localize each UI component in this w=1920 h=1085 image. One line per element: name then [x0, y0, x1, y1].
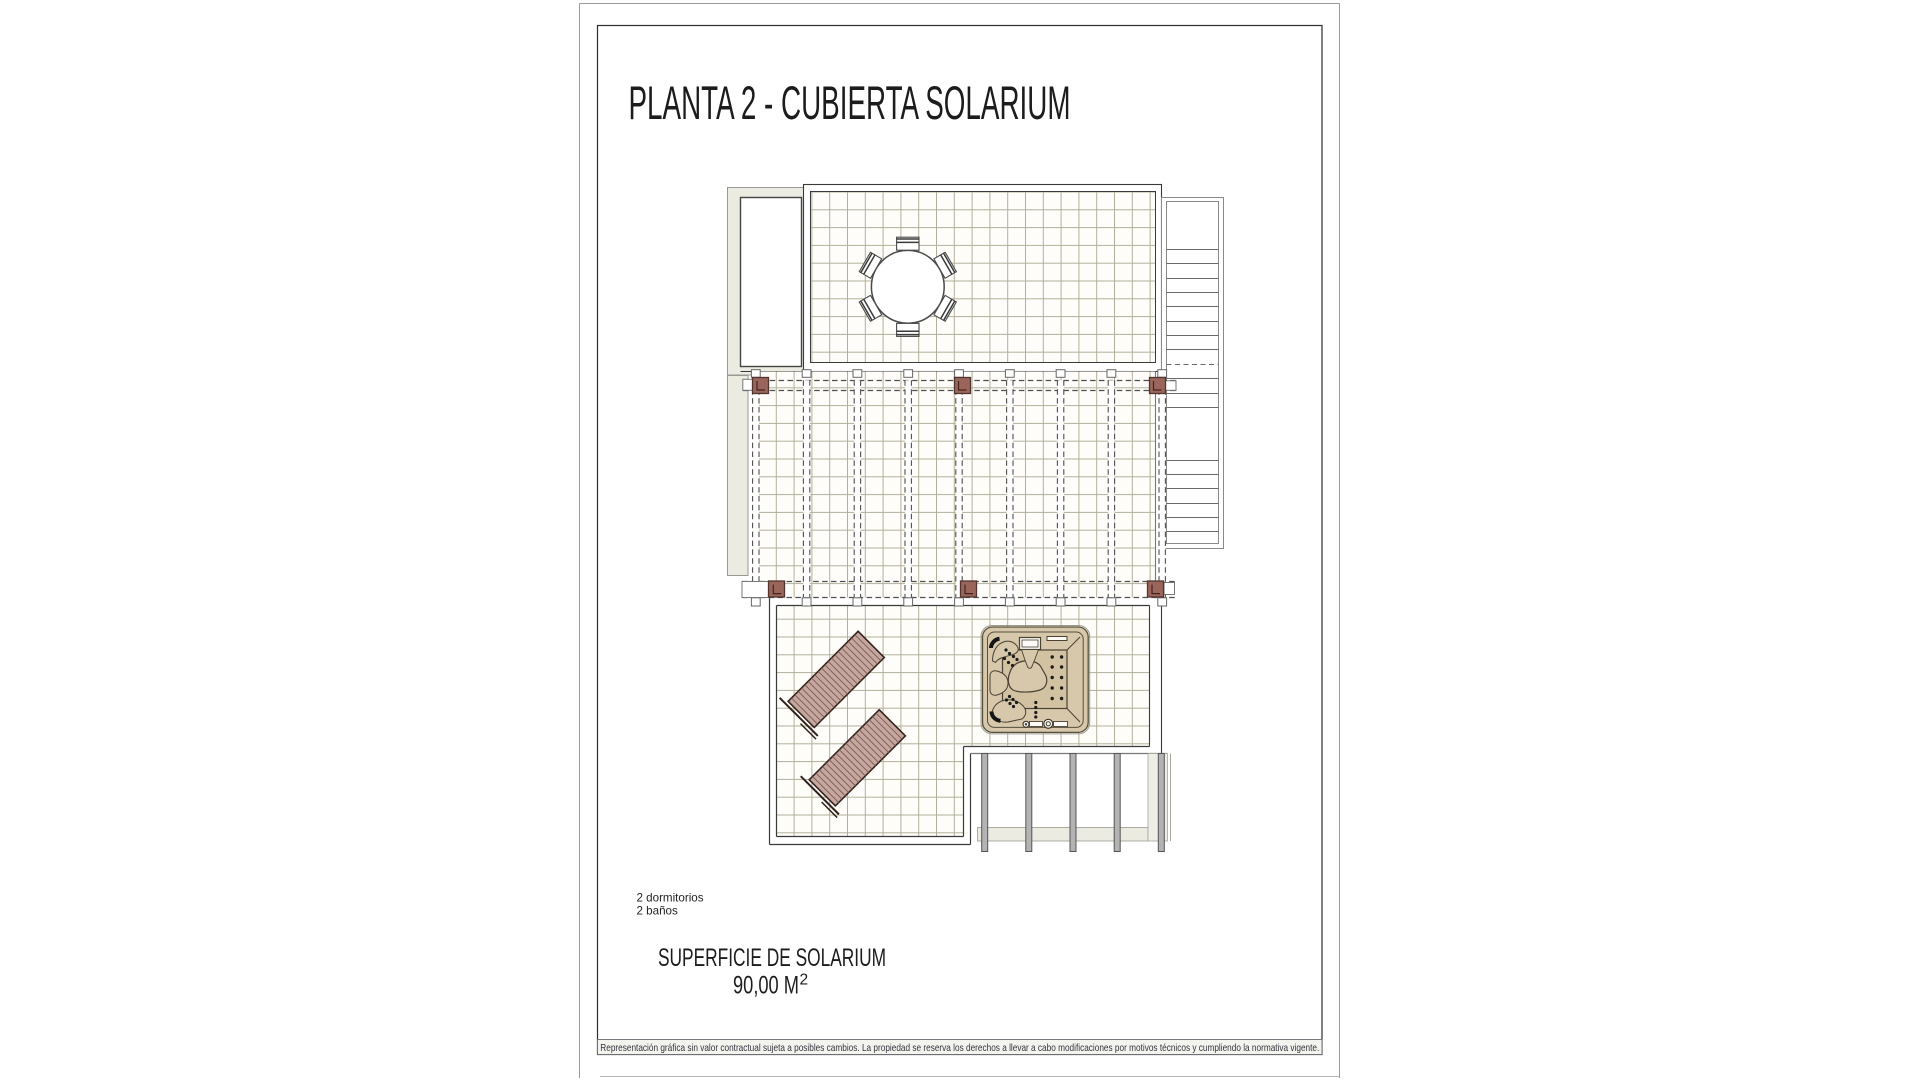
- svg-text:Representación gráfica sin val: Representación gráfica sin valor contrac…: [600, 1043, 1319, 1054]
- svg-text:2 baños: 2 baños: [637, 905, 678, 918]
- svg-text:SUPERFICIE DE SOLARIUM: SUPERFICIE DE SOLARIUM: [658, 945, 886, 972]
- svg-text:2 dormitorios: 2 dormitorios: [637, 892, 704, 905]
- svg-text:90,00 M: 90,00 M: [733, 972, 799, 999]
- svg-text:2: 2: [800, 972, 809, 989]
- svg-text:PLANTA 2 - CUBIERTA SOLARIUM: PLANTA 2 - CUBIERTA SOLARIUM: [629, 77, 1071, 130]
